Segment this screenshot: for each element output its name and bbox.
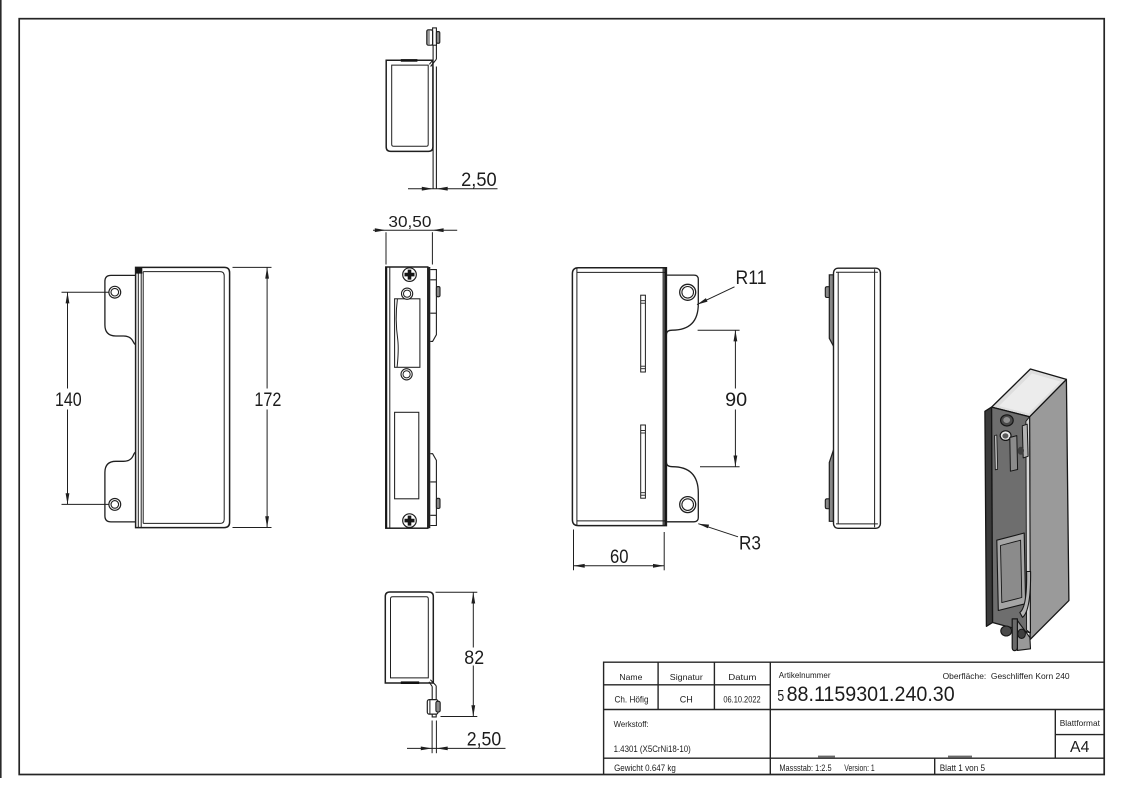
svg-text:140: 140 [55,390,82,411]
svg-text:90: 90 [725,390,747,411]
svg-text:06.10.2022: 06.10.2022 [723,695,760,705]
svg-text:R11: R11 [736,268,767,289]
svg-text:88.1159301.240.30: 88.1159301.240.30 [787,683,955,706]
svg-text:Oberfläche: Geschliffen Korn: Oberfläche: Geschliffen Korn 240 [943,671,1070,681]
svg-text:2,50: 2,50 [467,730,501,751]
svg-text:30,50: 30,50 [388,214,431,231]
svg-text:Version: 1: Version: 1 [844,763,874,773]
svg-text:60: 60 [610,547,629,568]
svg-text:R3: R3 [739,534,761,555]
svg-text:2,50: 2,50 [461,170,497,191]
svg-text:82: 82 [464,648,484,669]
svg-text:1.4301 (X5CrNi18-10): 1.4301 (X5CrNi18-10) [614,744,691,754]
svg-text:Blatt 1 von 5: Blatt 1 von 5 [940,763,985,773]
svg-text:172: 172 [254,390,281,411]
svg-text:Werkstoff:: Werkstoff: [614,719,649,729]
svg-text:5: 5 [777,688,784,705]
svg-text:CH: CH [680,695,693,705]
svg-text:Blattformat: Blattformat [1060,718,1101,728]
svg-text:Datum: Datum [728,672,756,682]
svg-text:Signatur: Signatur [670,672,703,682]
svg-text:A4: A4 [1070,739,1089,756]
svg-text:Massstab: 1:2.5: Massstab: 1:2.5 [779,763,831,773]
svg-text:Ch. Höfig: Ch. Höfig [615,695,649,705]
svg-text:Name: Name [619,672,642,682]
svg-text:Gewicht 0.647 kg: Gewicht 0.647 kg [614,763,676,773]
svg-text:Artikelnummer: Artikelnummer [779,670,831,680]
